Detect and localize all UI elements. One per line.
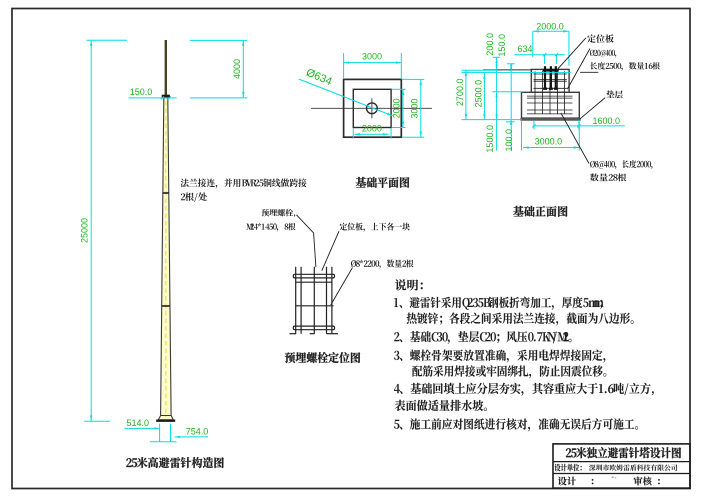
- svg-text:634: 634: [517, 44, 532, 54]
- svg-text:150.0: 150.0: [497, 34, 507, 57]
- svg-text:2000: 2000: [392, 98, 402, 118]
- svg-text:25000: 25000: [80, 218, 90, 243]
- svg-text:514.0: 514.0: [127, 418, 150, 428]
- svg-text:3000.0: 3000.0: [535, 137, 563, 147]
- svg-text:1600.0: 1600.0: [593, 116, 621, 126]
- svg-text:Ø634: Ø634: [304, 67, 333, 89]
- svg-text:1500.0: 1500.0: [485, 125, 495, 153]
- svg-text:200.0: 200.0: [485, 33, 495, 56]
- svg-text:100.0: 100.0: [504, 129, 514, 152]
- svg-text:2000: 2000: [362, 124, 382, 134]
- svg-text:2700.0: 2700.0: [455, 79, 465, 107]
- svg-text:2500.0: 2500.0: [473, 80, 483, 108]
- svg-text:754.0: 754.0: [186, 427, 209, 437]
- svg-text:4000: 4000: [232, 59, 242, 79]
- svg-text:2000.0: 2000.0: [536, 22, 564, 32]
- svg-text:3000: 3000: [409, 99, 419, 119]
- svg-text:3000: 3000: [362, 52, 382, 62]
- svg-text:150.0: 150.0: [130, 87, 153, 97]
